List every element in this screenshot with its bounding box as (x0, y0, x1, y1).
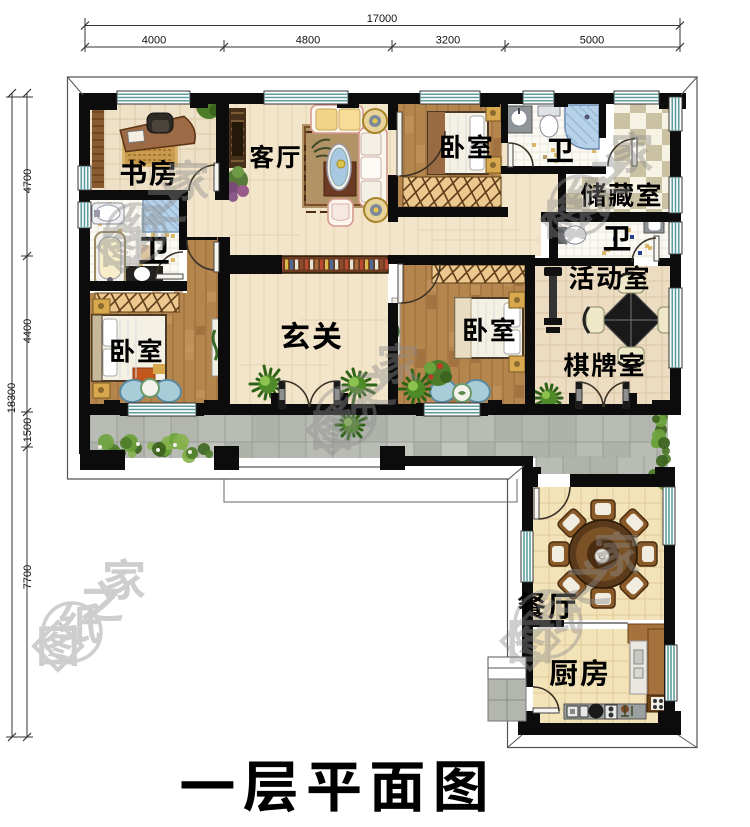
svg-text:5000: 5000 (580, 35, 604, 47)
svg-text:4400: 4400 (22, 319, 34, 343)
svg-text:4800: 4800 (296, 35, 320, 47)
svg-text:7700: 7700 (22, 565, 34, 589)
svg-text:18300: 18300 (6, 383, 18, 414)
svg-text:4000: 4000 (142, 35, 166, 47)
svg-text:3200: 3200 (436, 35, 460, 47)
svg-text:4700: 4700 (22, 169, 34, 193)
svg-text:17000: 17000 (367, 13, 398, 25)
svg-text:1500: 1500 (22, 418, 34, 442)
